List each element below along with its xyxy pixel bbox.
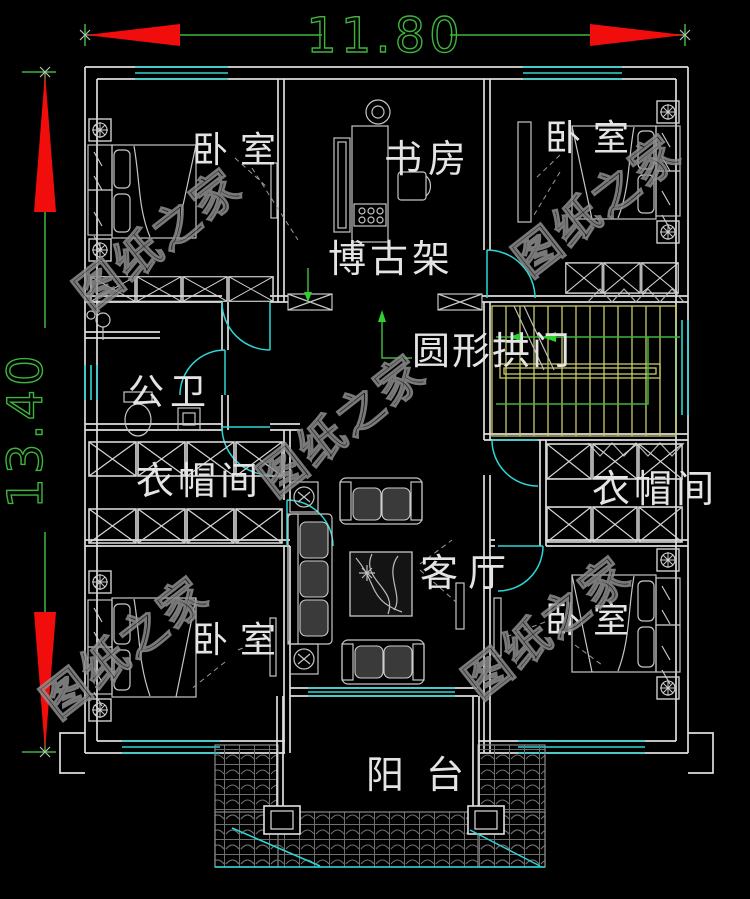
window-right-stairs: [676, 320, 688, 415]
pillow: [114, 194, 130, 232]
sofa-arm: [411, 482, 422, 520]
wardrobe-xbox: [604, 263, 640, 293]
wall-right-spine: [484, 475, 490, 753]
bedside-cabinet: [88, 145, 112, 190]
sofa-arm: [342, 644, 353, 680]
wardrobe-xbox: [89, 442, 136, 476]
floor-plan-canvas: 11.80 13.40: [0, 0, 750, 899]
window-top-left: [135, 67, 228, 79]
dimension-left: 13.40: [0, 67, 56, 757]
dimension-height-text: 13.40: [0, 351, 54, 508]
window-bottom-left: [122, 741, 220, 753]
bookshelf-inner: [338, 142, 346, 228]
wardrobe-xbox: [642, 263, 678, 293]
dimension-arrow-up: [34, 73, 56, 212]
dimension-arrow-left: [86, 24, 180, 46]
wardrobe-xbox: [138, 509, 185, 543]
drawer-knobs: [359, 208, 383, 223]
label-study: 书房: [384, 137, 472, 181]
sofa-cushion: [300, 561, 328, 597]
wardrobe-xbox: [547, 444, 591, 479]
label-bathroom: 公卫: [128, 372, 212, 413]
plant-detail: [298, 492, 310, 502]
nightstand-icon: [89, 119, 111, 141]
nightstand-icon: [89, 571, 111, 593]
sofa-cushion: [300, 600, 328, 636]
wall-bedroom-tl-east: [278, 79, 284, 302]
wardrobe-xbox: [187, 509, 234, 543]
label-bedroom-bottom-left: 卧室: [192, 620, 288, 661]
sofa-arm: [413, 644, 424, 680]
window-top-right: [523, 67, 622, 79]
bedside-cabinet: [88, 190, 112, 235]
watermark-text: 图纸之家: [31, 566, 219, 729]
window-left-bathroom: [85, 365, 97, 400]
wall-bedroom-tr-west: [484, 79, 490, 250]
wall-cloakroom-right-west: [540, 440, 546, 546]
label-display-shelf: 博古架: [328, 237, 454, 281]
desk: [352, 126, 388, 242]
arch-leader-arrow: [378, 310, 386, 322]
dresser: [271, 163, 277, 218]
sofa-cushion: [382, 488, 410, 520]
balcony-column: [264, 806, 300, 834]
plant-detail: [298, 654, 310, 664]
label-round-arch: 圆形拱门: [412, 329, 572, 373]
wardrobe-xbox: [229, 277, 273, 302]
bookshelf: [334, 138, 350, 232]
wardrobe-xbox: [183, 277, 227, 302]
dimension-arrow-right: [590, 24, 684, 46]
wardrobe-xbox: [89, 509, 136, 543]
label-cloakroom-left: 衣帽间: [136, 459, 262, 503]
balcony-column: [468, 806, 504, 834]
sofa-cushion: [384, 646, 412, 678]
wardrobe-xbox: [236, 509, 282, 543]
wardrobe-xbox: [566, 263, 602, 293]
cabinet-detail: [662, 586, 670, 684]
dimension-top: 11.80: [80, 8, 690, 64]
sofa-arm: [340, 482, 351, 520]
shelf-box-right-x: [438, 294, 482, 310]
chair-inner: [372, 106, 384, 118]
dresser: [518, 122, 531, 222]
wall-stairwell-south: [484, 434, 688, 440]
label-living-room: 客厅: [420, 551, 516, 595]
sofa-cushion: [353, 488, 381, 520]
door-stair-hall: [492, 440, 538, 486]
label-cloakroom-right: 衣帽间: [592, 467, 718, 511]
door-bedroom-tl: [222, 302, 270, 350]
label-balcony: 阳台: [366, 753, 486, 797]
label-bedroom-top-left: 卧室: [192, 130, 288, 171]
wardrobe-xbox: [593, 507, 637, 542]
sofa-cushion: [300, 522, 328, 558]
sofa-cushion: [355, 646, 383, 678]
window-living-balcony: [308, 688, 455, 696]
wardrobe-xbox: [547, 507, 591, 542]
chair: [366, 100, 390, 124]
pillow: [114, 150, 130, 188]
dimension-width-text: 11.80: [306, 8, 463, 64]
